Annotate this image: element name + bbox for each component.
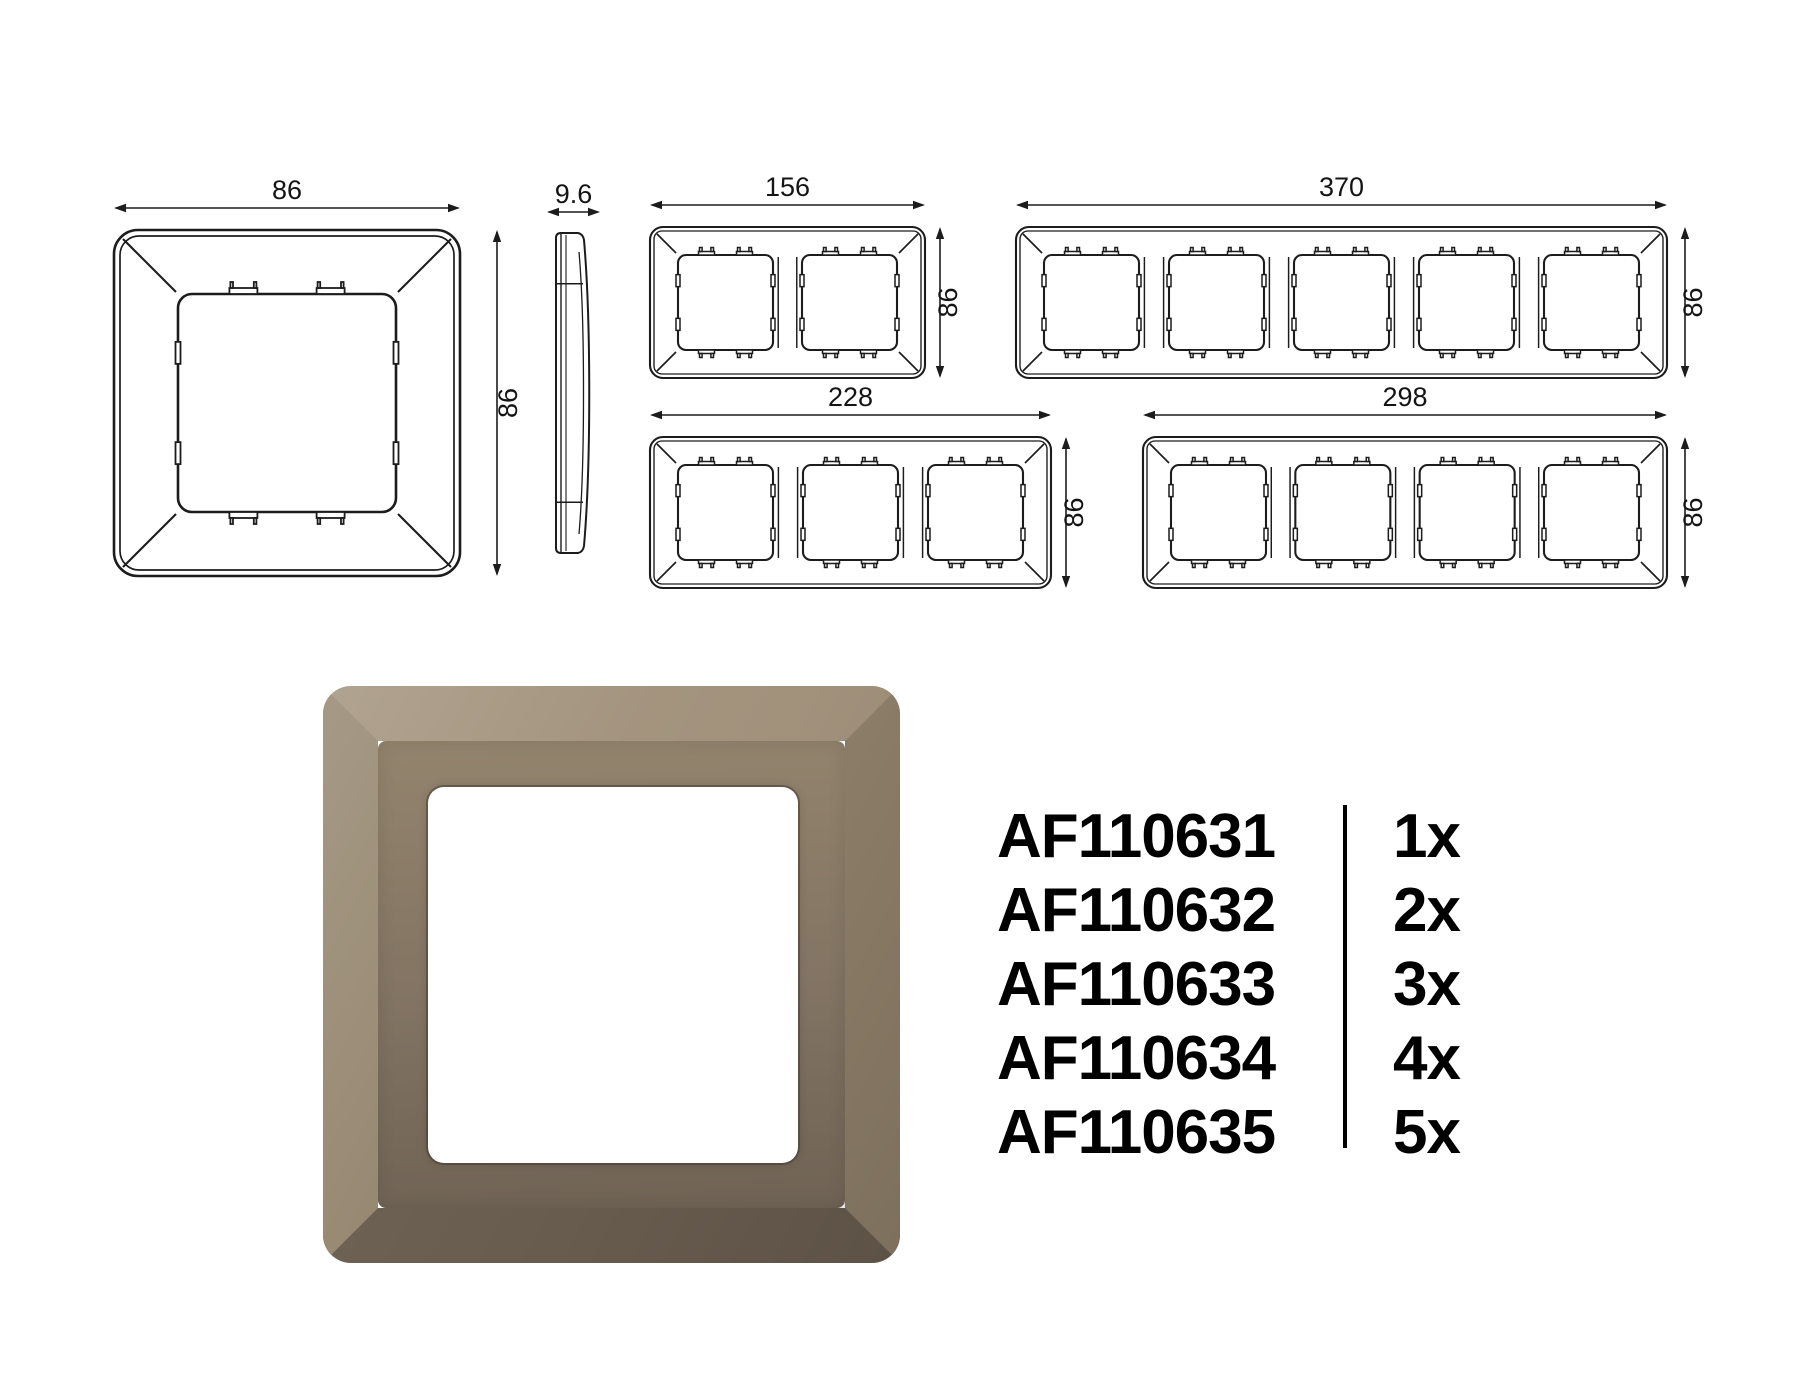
parts-list: AF1106311xAF1106322xAF1106333xAF1106344x… [997,799,1527,1169]
drawing-svg-front-1: 8686 [90,160,535,590]
part-sku: AF110635 [997,1097,1343,1168]
part-qty: 5x [1393,1097,1460,1168]
dim-label: 228 [828,382,873,412]
part-row: AF1106333x [997,947,1527,1021]
drawing-front-3gang: 22886 [640,370,1100,605]
part-qty: 3x [1393,949,1460,1020]
parts-divider [1343,805,1347,1148]
drawing-front-1gang: 8686 [90,160,535,590]
drawing-front-4gang: 29886 [1133,370,1718,605]
drawing-svg-front-4: 29886 [1133,370,1718,605]
part-qty: 2x [1393,875,1460,946]
dim-label: 370 [1319,172,1364,202]
drawing-front-2gang: 15686 [640,160,985,395]
dim-label: 86 [272,175,302,205]
dim-label: 86 [493,388,523,418]
dim-label: 86 [1059,497,1089,527]
part-sku: AF110634 [997,1023,1343,1094]
product-render-frame [323,686,900,1263]
plate-opening [428,787,798,1163]
dim-label: 86 [1678,497,1708,527]
part-sku: AF110632 [997,875,1343,946]
part-row: AF1106344x [997,1021,1527,1095]
part-row: AF1106311x [997,799,1527,873]
part-row: AF1106322x [997,873,1527,947]
dim-label: 86 [933,287,963,317]
part-qty: 1x [1393,801,1460,872]
drawing-svg-front-3: 22886 [640,370,1100,605]
drawing-svg-front-5: 37086 [1006,160,1731,395]
product-sheet: 8686 9.6 15686 37086 22886 29886 AF11063… [0,0,1800,1400]
part-qty: 4x [1393,1023,1460,1094]
drawing-front-5gang: 37086 [1006,160,1731,395]
part-sku: AF110631 [997,801,1343,872]
part-sku: AF110633 [997,949,1343,1020]
dim-label: 86 [1678,287,1708,317]
drawing-svg-front-2: 15686 [640,160,985,395]
dim-label: 156 [765,172,810,202]
dim-label: 298 [1382,382,1427,412]
part-row: AF1106355x [997,1095,1527,1169]
dim-label: 9.6 [555,179,593,209]
